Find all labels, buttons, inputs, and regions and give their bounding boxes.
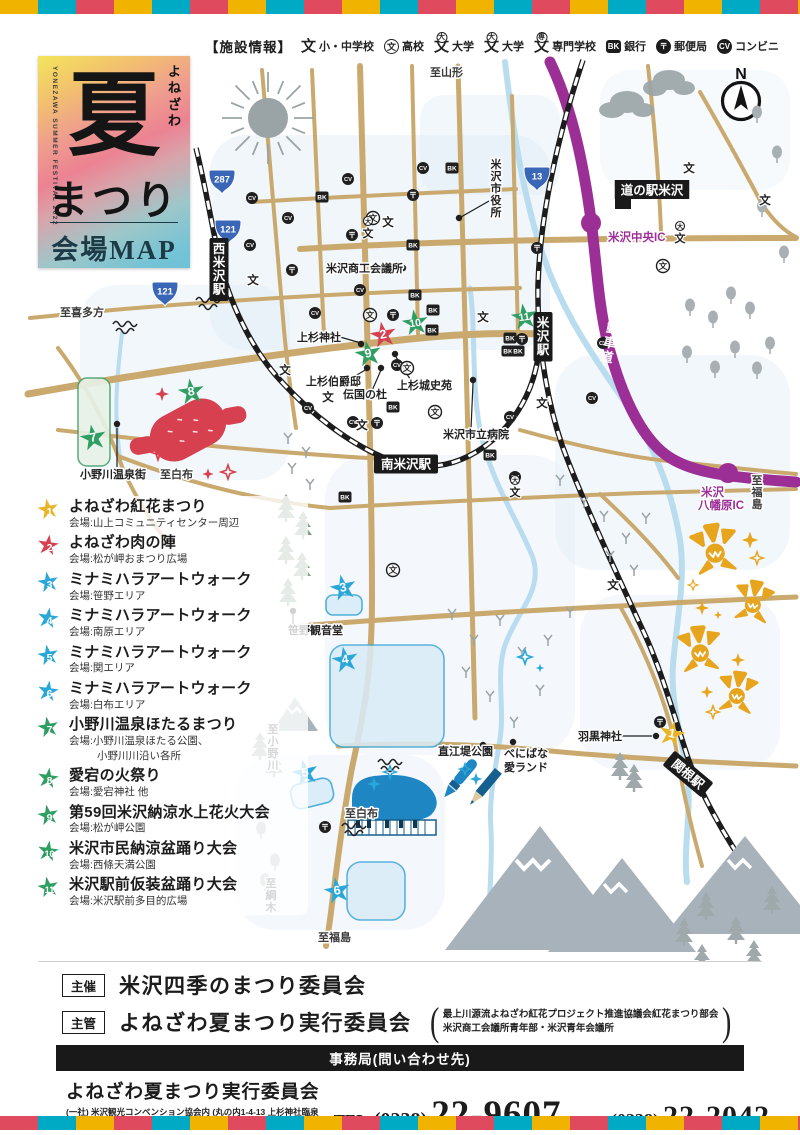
legend-item: 文大大学: [484, 38, 524, 54]
facility-icon-cv: CV: [244, 239, 256, 251]
map-label: 至喜多方: [60, 305, 104, 319]
event-venue: 会場:笹野エリア: [69, 590, 252, 603]
leader-line: [471, 383, 473, 429]
event-item-3: ★3ミナミハラアートウォーク会場:笹野エリア: [36, 571, 308, 603]
svg-text:大: 大: [365, 217, 371, 225]
facility-icon-bk: BK: [387, 402, 400, 413]
event-item-9: ★9第59回米沢納涼水上花火大会会場:松が岬公園: [36, 804, 308, 836]
elementary-junior-school-icon: 文: [301, 39, 316, 54]
tree-icon: [726, 287, 736, 305]
event-item-1: ★1よねざわ紅花まつり会場:山上コミュニティセンター周辺: [36, 498, 308, 530]
svg-text:BK: BK: [317, 194, 327, 201]
facility-icon-hs: 文: [401, 362, 414, 375]
map-label: 至福島: [318, 930, 351, 944]
map-label: 至福島: [751, 474, 763, 511]
svg-text:文: 文: [382, 215, 394, 229]
facility-icon-hs: 文: [429, 406, 442, 419]
svg-text:BK: BK: [408, 242, 418, 249]
map-star-7: ★7: [75, 417, 112, 460]
facility-icon-bk: BK: [339, 492, 352, 503]
facility-icon-post: 〒: [286, 264, 298, 276]
svg-text:道の駅米沢: 道の駅米沢: [621, 183, 684, 198]
bank-icon: BK: [606, 40, 621, 53]
poi-dot: [456, 215, 462, 221]
open-paren: (: [430, 1004, 439, 1040]
svg-text:〒: 〒: [288, 266, 296, 275]
legend-item: 〒郵便局: [656, 38, 707, 54]
event-title: 愛宕の火祭り: [69, 767, 161, 784]
map-label: 米沢商工会議所: [325, 261, 403, 275]
svg-text:文: 文: [683, 161, 695, 175]
svg-text:〒: 〒: [348, 231, 356, 240]
yonezawa-chuo-ic-marker: [581, 213, 601, 233]
svg-text:〒: 〒: [321, 823, 329, 832]
festival-title-card: YONEZAWA SUMMER FESTIVAL 2022 よねざわ 夏 まつり…: [38, 56, 190, 268]
facility-icon-school: 文: [279, 363, 291, 377]
poi-dot: [114, 421, 120, 427]
event-title: 米沢駅前仮装盆踊り大会: [69, 876, 237, 893]
facility-icon-univ: 文大: [675, 222, 687, 246]
manager-note-line1: 最上川源流よねざわ紅花プロジェクト推進協議会紅花まつり部会: [443, 1009, 719, 1020]
event-star-icon: ★3: [36, 571, 66, 601]
sparkle-icon: [470, 773, 483, 786]
tree-icon: [779, 246, 789, 264]
map-label: 至山形: [430, 65, 463, 79]
svg-text:文: 文: [675, 231, 687, 245]
event-venue: 会場:小野川温泉ほたる公園、: [69, 735, 237, 748]
svg-text:CV: CV: [304, 406, 312, 412]
map-label-box: 道の駅米沢: [615, 180, 690, 199]
legend-item: BK銀行: [606, 38, 646, 54]
event-star-icon: ★5: [36, 644, 66, 674]
map-label: 羽黒神社: [578, 729, 622, 743]
svg-text:13: 13: [532, 172, 543, 183]
office-name: よねざわ夏まつり実行委員会: [66, 1078, 320, 1104]
map-label: 伝国の杜: [343, 387, 387, 401]
map-label: 上杉伯爵邸: [306, 374, 361, 388]
blue-area-4: [347, 862, 405, 920]
svg-text:文: 文: [510, 485, 522, 499]
svg-text:文: 文: [322, 390, 334, 404]
svg-text:CV: CV: [311, 311, 319, 317]
facility-icon-univ: 文大: [363, 217, 375, 241]
facility-icon-school: 文: [759, 193, 771, 207]
svg-text:121: 121: [157, 287, 174, 298]
event-star-icon: ★8: [36, 767, 66, 797]
map-label: 八幡原IC: [697, 498, 744, 512]
event-title: 米沢市民納涼盆踊り大会: [69, 840, 237, 857]
svg-text:11: 11: [518, 311, 531, 324]
facility-icon-hs: 文: [657, 260, 670, 273]
event-title: ミナミハラアートウォーク: [69, 607, 252, 624]
legend-item: 文専専門学校: [534, 38, 596, 54]
map-label: 米沢中央IC: [607, 230, 666, 244]
title-divider: [50, 222, 178, 223]
map-label: 上杉神社: [297, 330, 341, 344]
svg-text:〒: 〒: [373, 419, 381, 428]
map-star-9: ★9: [350, 333, 387, 376]
facility-icon-school: 文: [536, 396, 548, 410]
facility-icon-school: 文: [477, 310, 489, 324]
organizer-name: 米沢四季のまつり委員会: [119, 970, 367, 1000]
event-star-icon: ★6: [36, 680, 66, 710]
map-label: 米沢: [700, 485, 724, 499]
tree-icon: [745, 302, 755, 320]
map-star-11: ★11: [506, 296, 541, 338]
svg-text:文: 文: [759, 193, 771, 207]
map-label: 至白布: [345, 806, 378, 820]
svg-text:文: 文: [607, 578, 619, 592]
facility-icon-post: 〒: [371, 417, 383, 429]
facility-icon-school: 文: [356, 418, 368, 432]
svg-text:CV: CV: [284, 216, 292, 222]
venue-map-label: 会場MAP: [38, 228, 190, 267]
event-item-6: ★6ミナミハラアートウォーク会場:白布エリア: [36, 680, 308, 712]
svg-text:CV: CV: [356, 288, 364, 294]
facility-icon-bk: BK: [409, 290, 422, 301]
legend-item-label: 大学: [502, 38, 524, 54]
svg-text:CV: CV: [246, 243, 254, 249]
grass-icon: [288, 463, 296, 474]
map-star-6: ★6: [319, 870, 356, 913]
svg-text:文: 文: [431, 407, 440, 417]
convenience-store-icon: CV: [717, 39, 732, 54]
facility-icon-school: 文: [322, 390, 334, 404]
tree-icon: [765, 337, 775, 355]
post-office-icon: 〒: [656, 39, 671, 54]
facility-icon-cv: CV: [309, 307, 321, 319]
facility-icon-post: 〒: [319, 821, 331, 833]
event-star-icon: ★10: [36, 840, 66, 870]
office-bar: 事務局(問い合わせ先): [56, 1045, 744, 1071]
event-star-icon: ★2: [36, 534, 66, 564]
svg-text:文: 文: [363, 226, 375, 240]
svg-text:文: 文: [403, 363, 412, 373]
event-item-2: ★2よねざわ肉の陣会場:松が岬おまつり広場: [36, 534, 308, 566]
svg-text:文: 文: [477, 310, 489, 324]
map-label: 米沢市役所: [490, 157, 503, 219]
map-label: 上杉城史苑: [397, 378, 452, 392]
event-title: ミナミハラアートウォーク: [69, 680, 252, 697]
svg-text:文: 文: [389, 565, 398, 575]
legend-item-label: 高校: [402, 38, 424, 54]
event-venue: 会場:山上コミュニティセンター周辺: [69, 517, 239, 530]
map-star-10: ★10: [397, 302, 432, 344]
legend-item-label: コンビニ: [735, 38, 779, 54]
bottom-border-stripe: [0, 1116, 800, 1130]
facility-icon-hs: 文: [387, 564, 400, 577]
facility-icon-cv: CV: [342, 173, 354, 185]
event-venue: 会場:西條天満公園: [69, 859, 237, 872]
event-title: ミナミハラアートウォーク: [69, 644, 252, 661]
svg-text:大: 大: [677, 222, 683, 230]
facility-icon-bk: BK: [316, 192, 329, 203]
event-item-10: ★10米沢市民納涼盆踊り大会会場:西條天満公園: [36, 840, 308, 872]
map-label: 直江堤公園: [438, 744, 493, 758]
svg-text:BK: BK: [410, 292, 420, 299]
event-list: ★1よねざわ紅花まつり会場:山上コミュニティセンター周辺★2よねざわ肉の陣会場:…: [34, 496, 308, 915]
facility-legend: 【施設情報】 文小・中学校文高校文大大学文大大学文専専門学校BK銀行〒郵便局CV…: [205, 36, 780, 56]
facility-icon-cv: CV: [302, 402, 314, 414]
map-label: べにばな: [504, 746, 548, 760]
manager-note: ( 最上川源流よねざわ紅花プロジェクト推進協議会紅花まつり部会 米沢商工会議所青…: [428, 1004, 734, 1040]
poi-dot: [470, 377, 476, 383]
event-item-4: ★4ミナミハラアートウォーク会場:南原エリア: [36, 607, 308, 639]
manager-tag: 主管: [62, 1011, 105, 1034]
event-item-7: ★7小野川温泉ほたるまつり会場:小野川温泉ほたる公園、小野川川沿い各所: [36, 716, 308, 763]
facility-icon-school: 文: [382, 215, 394, 229]
manager-note-line2: 米沢商工会議所青年部・米沢青年会議所: [443, 1023, 614, 1034]
facility-icon-bk: BK: [407, 240, 420, 251]
legend-item-label: 大学: [452, 38, 474, 54]
legend-item-label: 小・中学校: [319, 38, 374, 54]
svg-text:〒: 〒: [409, 191, 417, 200]
event-title: 第59回米沢納涼水上花火大会: [69, 804, 270, 821]
legend-item: 文高校: [384, 38, 424, 54]
grass-icon: [306, 479, 314, 490]
facility-icon-post: 〒: [531, 242, 543, 254]
facility-icon-cv: CV: [246, 192, 258, 204]
svg-text:BK: BK: [428, 307, 438, 314]
event-star-icon: ★9: [36, 804, 66, 834]
event-item-8: ★8愛宕の火祭り会場:愛宕神社 他: [36, 767, 308, 799]
vocational-school-icon: 文専: [534, 39, 549, 54]
facility-icon-cv: CV: [282, 212, 294, 224]
svg-text:大: 大: [512, 476, 518, 484]
svg-text:CV: CV: [248, 196, 256, 202]
svg-text:〒: 〒: [533, 244, 541, 253]
svg-text:BK: BK: [485, 452, 495, 459]
facility-icon-univ: 文大: [510, 476, 522, 500]
event-title: ミナミハラアートウォーク: [69, 571, 252, 588]
svg-text:121: 121: [220, 225, 237, 236]
event-venue: 会場:松が岬おまつり広場: [69, 553, 187, 566]
svg-text:CV: CV: [344, 177, 352, 183]
event-star-icon: ★7: [36, 716, 66, 746]
event-star-icon: ★1: [36, 498, 66, 528]
high-school-icon: 文: [384, 39, 399, 54]
footer: 主催 米沢四季のまつり委員会 主管 よねざわ夏まつり実行委員会 ( 最上川源流よ…: [0, 961, 800, 1116]
event-venue: 会場:米沢駅前多目的広場: [69, 895, 237, 908]
facility-icon-bk: BK: [484, 450, 497, 461]
facility-icon-post: 〒: [407, 189, 419, 201]
close-paren: ): [722, 1004, 731, 1040]
event-star-icon: ★11: [36, 876, 66, 906]
facility-icon-cv: CV: [354, 284, 366, 296]
sun-icon: [222, 72, 314, 164]
svg-text:10: 10: [409, 317, 422, 331]
event-item-11: ★11米沢駅前仮装盆踊り大会会場:米沢駅前多目的広場: [36, 876, 308, 908]
university-icon-2: 文大: [484, 39, 499, 54]
legend-item: CVコンビニ: [717, 38, 779, 54]
map-star-8: ★8: [173, 371, 208, 413]
event-venue: 会場:松が岬公園: [69, 822, 270, 835]
svg-text:287: 287: [214, 175, 230, 186]
yonezawa-hachimampara-ic-marker: [718, 463, 738, 483]
svg-text:BK: BK: [388, 404, 398, 411]
svg-text:文: 文: [659, 261, 668, 271]
festival-title-matsuri: まつり: [38, 168, 190, 226]
legend-title: 【施設情報】: [205, 36, 292, 56]
facility-icon-bk: BK: [512, 346, 525, 357]
event-star-icon: ★4: [36, 607, 66, 637]
facility-icon-school: 文: [683, 161, 695, 175]
legend-item: 文大大学: [434, 38, 474, 54]
legend-item-label: 郵便局: [674, 38, 707, 54]
facility-icon-school: 文: [247, 273, 259, 287]
svg-text:CV: CV: [506, 415, 514, 421]
event-venue: 会場:白布エリア: [69, 699, 252, 712]
event-venue: 会場:愛宕神社 他: [69, 786, 161, 799]
event-venue: 会場:南原エリア: [69, 626, 252, 639]
event-venue-line2: 小野川川沿い各所: [69, 750, 237, 763]
tree-icon: [708, 311, 718, 329]
pencil-icon: [467, 768, 502, 807]
svg-text:BK: BK: [340, 494, 350, 501]
svg-text:BK: BK: [513, 348, 523, 355]
facility-icon-school: 文: [607, 578, 619, 592]
organizer-tag: 主催: [62, 974, 105, 997]
top-border-stripe: [0, 0, 800, 14]
facility-icon-cv: CV: [504, 411, 516, 423]
event-title: よねざわ紅花まつり: [69, 498, 239, 515]
svg-text:文: 文: [279, 363, 291, 377]
facility-icon-post: 〒: [346, 229, 358, 241]
svg-text:文: 文: [536, 396, 548, 410]
map-label: N: [735, 66, 747, 83]
map-label: 小野川温泉街: [79, 467, 146, 481]
svg-text:CV: CV: [419, 166, 427, 172]
svg-text:CV: CV: [588, 396, 596, 402]
facility-icon-cv: CV: [417, 162, 429, 174]
facility-icon-cv: CV: [586, 392, 598, 404]
sparkle-icon: [688, 580, 698, 590]
event-item-5: ★5ミナミハラアートウォーク会場:関エリア: [36, 644, 308, 676]
legend-item-label: 銀行: [624, 38, 646, 54]
summer-logo: 夏: [38, 70, 190, 162]
map-label: 至白布: [160, 467, 193, 481]
tree-icon: [685, 299, 695, 317]
svg-text:文: 文: [356, 418, 368, 432]
svg-text:文: 文: [247, 273, 259, 287]
station-label-西米沢駅: 西米沢駅: [210, 238, 229, 301]
manager-name: よねざわ夏まつり実行委員会: [119, 1007, 412, 1037]
map-label: 愛ランド: [504, 760, 548, 774]
map-star-4: ★4: [327, 639, 364, 682]
poi-dot: [510, 739, 516, 745]
event-title: よねざわ肉の陣: [69, 534, 187, 551]
svg-text:BK: BK: [447, 165, 457, 172]
facility-icon-bk: BK: [446, 163, 459, 174]
event-venue: 会場:関エリア: [69, 662, 252, 675]
map-label: 米沢市立病院: [442, 427, 509, 441]
station-label-南米沢駅: 南米沢駅: [374, 455, 438, 474]
university-icon: 文大: [434, 39, 449, 54]
svg-text:南米沢駅: 南米沢駅: [381, 457, 432, 472]
legend-item: 文小・中学校: [301, 38, 374, 54]
event-title: 小野川温泉ほたるまつり: [69, 716, 237, 733]
legend-item-label: 専門学校: [552, 38, 596, 54]
svg-text:西米沢駅: 西米沢駅: [212, 242, 226, 297]
